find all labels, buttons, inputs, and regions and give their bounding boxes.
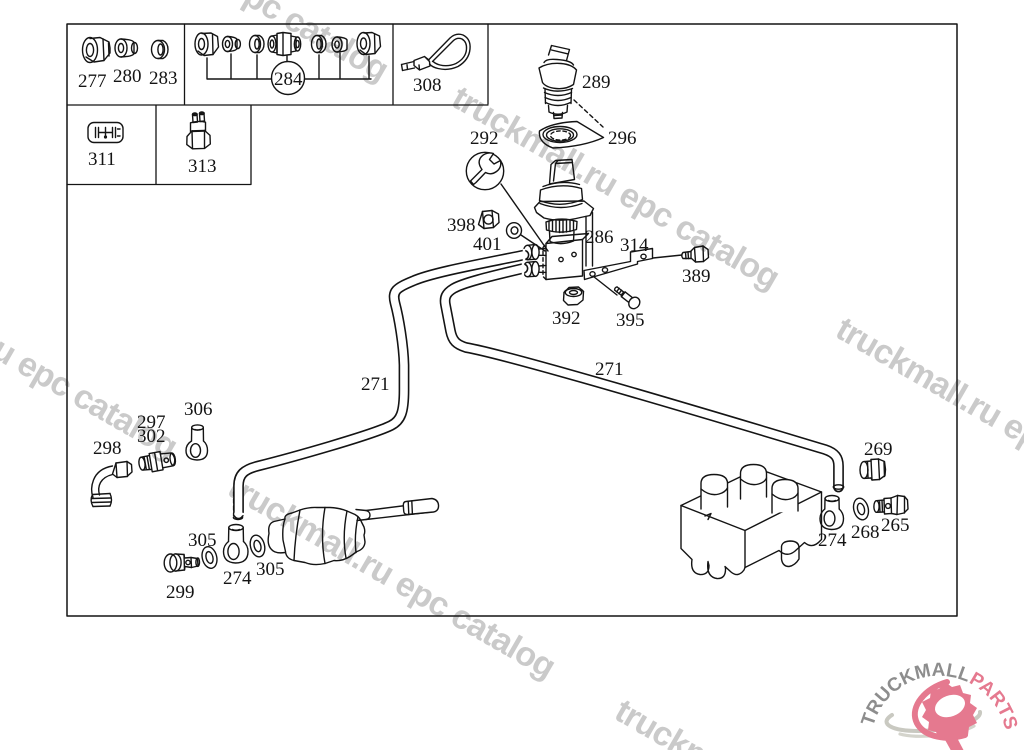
svg-text:298: 298 [93,438,122,459]
svg-text:395: 395 [616,310,645,331]
svg-text:277: 277 [78,71,107,92]
svg-text:269: 269 [864,439,893,460]
svg-text:314: 314 [620,235,649,256]
svg-text:398: 398 [447,215,476,236]
svg-text:271: 271 [595,359,624,380]
svg-text:274: 274 [818,530,847,551]
svg-text:306: 306 [184,399,213,420]
svg-text:280: 280 [113,66,142,87]
svg-text:283: 283 [149,68,178,89]
svg-text:268: 268 [851,522,880,543]
svg-text:271: 271 [361,374,390,395]
svg-text:401: 401 [473,234,502,255]
svg-text:292: 292 [470,128,499,149]
svg-text:389: 389 [682,266,711,287]
svg-text:305: 305 [256,559,285,580]
svg-text:265: 265 [881,515,910,536]
svg-text:299: 299 [166,582,195,603]
svg-text:296: 296 [608,128,637,149]
svg-text:308: 308 [413,75,442,96]
svg-text:289: 289 [582,72,611,93]
svg-text:302: 302 [137,426,166,447]
svg-text:392: 392 [552,308,581,329]
svg-text:305: 305 [188,530,217,551]
svg-text:311: 311 [88,149,116,170]
svg-text:313: 313 [188,156,217,177]
svg-text:284: 284 [274,69,303,90]
svg-text:286: 286 [585,227,614,248]
svg-text:274: 274 [223,568,252,589]
